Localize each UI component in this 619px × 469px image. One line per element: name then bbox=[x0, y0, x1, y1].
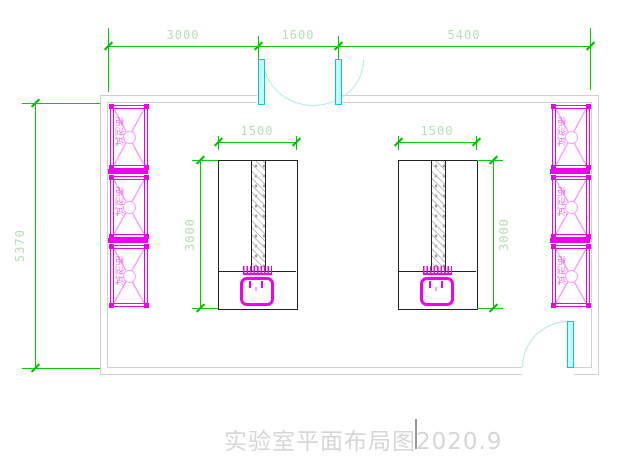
text-cursor bbox=[415, 419, 417, 449]
reagent-cabinet-right-1: 试剂柜 bbox=[552, 105, 590, 169]
cabinet-label: 试剂柜 bbox=[114, 255, 127, 285]
dim-label-top-left: 3000 bbox=[163, 28, 203, 42]
faucet-icon bbox=[249, 281, 251, 288]
drawing-title: 实验室平面布局图2020.9 bbox=[224, 422, 502, 456]
cabinet-corner bbox=[144, 244, 149, 249]
dim-label-room-height: 5370 bbox=[13, 218, 27, 274]
water-drop-icon bbox=[435, 287, 437, 291]
cabinet-label: 试剂柜 bbox=[114, 116, 127, 146]
sink-icon bbox=[420, 277, 454, 306]
bench-reagent-shelf bbox=[251, 161, 266, 271]
faucet-icon bbox=[441, 281, 443, 288]
water-drop-icon bbox=[255, 287, 257, 291]
dim-ext-line bbox=[258, 36, 259, 60]
dim-label-bench-depth: 3000 bbox=[497, 210, 511, 260]
door-leaf-bottom bbox=[567, 321, 574, 368]
reagent-cabinet-left-2: 试剂柜 bbox=[110, 176, 148, 238]
faucet-strip bbox=[423, 266, 452, 275]
dim-label-top-right: 5400 bbox=[444, 28, 484, 42]
dim-line-bench-width bbox=[218, 142, 296, 143]
dim-label-bench-width: 1500 bbox=[417, 124, 457, 138]
cabinet-label: 试剂柜 bbox=[556, 116, 569, 146]
dim-line-bench-depth bbox=[200, 160, 201, 308]
reagent-cabinet-left-1: 试剂柜 bbox=[110, 105, 148, 169]
reagent-cabinet-right-2: 试剂柜 bbox=[552, 176, 590, 238]
dim-label-top-middle: 1600 bbox=[278, 28, 318, 42]
cabinet-corner bbox=[551, 244, 556, 249]
dim-ext-line bbox=[338, 36, 339, 60]
cabinet-corner bbox=[109, 244, 114, 249]
dim-ext-line bbox=[192, 308, 218, 309]
dim-ext-line bbox=[590, 28, 591, 90]
cabinet-divider bbox=[550, 238, 590, 243]
reagent-cabinet-left-3: 试剂柜 bbox=[110, 245, 148, 307]
door-leaf-right bbox=[335, 59, 342, 105]
dim-ext-line bbox=[108, 28, 109, 92]
cabinet-corner bbox=[551, 303, 556, 308]
faucet-icon bbox=[429, 281, 431, 288]
dim-label-bench-width: 1500 bbox=[237, 124, 277, 138]
cabinet-corner bbox=[586, 303, 591, 308]
cabinet-corner bbox=[551, 175, 556, 180]
cabinet-corner bbox=[109, 175, 114, 180]
cabinet-corner bbox=[144, 175, 149, 180]
room-wall-inner bbox=[107, 102, 592, 368]
cabinet-corner bbox=[586, 175, 591, 180]
cabinet-label: 试剂柜 bbox=[556, 186, 569, 216]
cabinet-corner bbox=[109, 303, 114, 308]
cabinet-divider bbox=[108, 238, 148, 243]
dim-line-bench-depth bbox=[493, 160, 494, 308]
faucet-strip bbox=[243, 266, 272, 275]
dim-ext-line bbox=[192, 160, 218, 161]
cabinet-corner bbox=[586, 104, 591, 109]
faucet-icon bbox=[261, 281, 263, 288]
dim-line-top bbox=[108, 46, 590, 47]
dim-line-bench-width bbox=[398, 142, 476, 143]
reagent-cabinet-right-3: 试剂柜 bbox=[552, 245, 590, 307]
cabinet-corner bbox=[109, 104, 114, 109]
cabinet-corner bbox=[551, 104, 556, 109]
cabinet-corner bbox=[586, 244, 591, 249]
cabinet-divider bbox=[108, 169, 148, 174]
sink-icon bbox=[240, 277, 274, 306]
cabinet-divider bbox=[550, 169, 590, 174]
dim-label-bench-depth: 3000 bbox=[183, 210, 197, 260]
cabinet-corner bbox=[144, 104, 149, 109]
cabinet-label: 试剂柜 bbox=[114, 186, 127, 216]
bench-reagent-shelf bbox=[431, 161, 446, 271]
door-leaf-left bbox=[258, 59, 265, 105]
cabinet-label: 试剂柜 bbox=[556, 255, 569, 285]
cad-drawing-canvas: 3000 1600 5400 5370 试剂柜 试剂柜 试剂柜 试剂柜 bbox=[0, 0, 619, 469]
cabinet-corner bbox=[144, 303, 149, 308]
dim-line-left bbox=[35, 103, 36, 368]
